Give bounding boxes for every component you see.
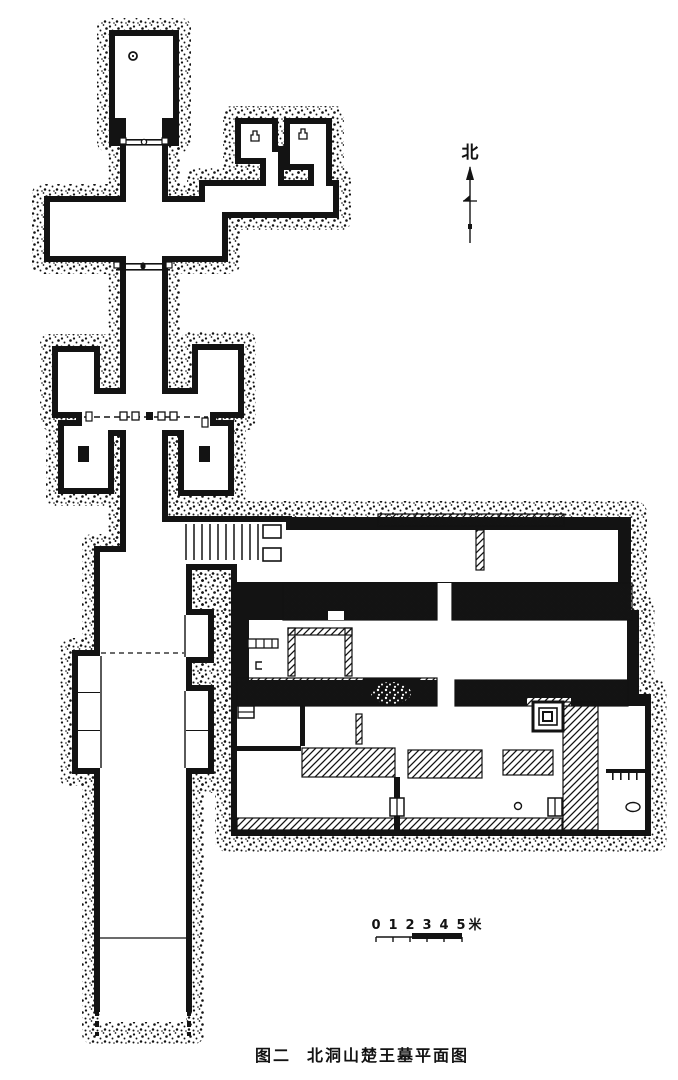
scale-tick-label: 2 — [405, 918, 414, 933]
niche — [78, 656, 102, 692]
figure-caption: 图二 北洞山楚王墓平面图 — [255, 1046, 469, 1065]
scale-tick-label: 5 — [456, 918, 465, 933]
scale-bar: 0 1 2 3 4 5 米 — [371, 917, 482, 942]
scale-tick-label: 1 — [388, 918, 397, 933]
north-label: 北 — [462, 143, 479, 163]
long-corridor — [100, 552, 186, 1022]
caption-number: 图二 — [255, 1046, 291, 1065]
niche — [78, 693, 102, 730]
socket-hole — [515, 803, 522, 810]
cross-hall — [50, 202, 222, 256]
niche — [78, 731, 102, 768]
tomb-plan-figure: 北 0 1 2 3 4 5 米 图二 北洞山楚王墓平面图 — [0, 0, 678, 1080]
north-arrowhead-icon — [466, 166, 474, 180]
band-doorway-notch — [328, 611, 344, 620]
collapsed-rubble-patch — [363, 678, 420, 706]
scale-unit-label: 米 — [468, 917, 482, 933]
well-feature — [533, 702, 563, 731]
niche — [184, 691, 208, 730]
door-socket-block — [78, 446, 89, 462]
scale-tick-label: 4 — [439, 918, 448, 933]
complex-top-room — [237, 530, 618, 582]
scanned-plan-page: 北 0 1 2 3 4 5 米 图二 北洞山楚王墓平面图 — [0, 0, 678, 1080]
caption-title: 北洞山楚王墓平面图 — [307, 1046, 469, 1065]
niche — [184, 615, 208, 657]
scale-tick-label: 0 — [371, 918, 380, 933]
ladder-object — [248, 639, 278, 648]
north-arrow: 北 — [462, 143, 479, 243]
basin-object — [626, 803, 640, 812]
scale-tick-label: 3 — [422, 918, 431, 933]
east-room-upper — [198, 350, 238, 412]
niche — [184, 731, 208, 768]
door-socket-block — [199, 446, 210, 462]
